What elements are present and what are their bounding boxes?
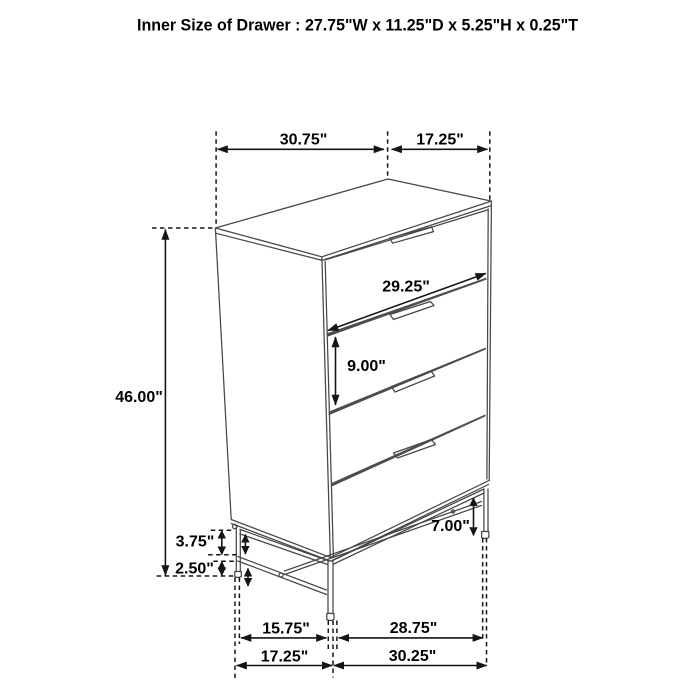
svg-text:30.25": 30.25" [389, 648, 437, 665]
svg-text:29.25": 29.25" [382, 279, 430, 296]
svg-text:15.75": 15.75" [262, 621, 310, 638]
svg-text:30.75": 30.75" [280, 132, 328, 149]
svg-text:7.00": 7.00" [431, 518, 470, 535]
svg-text:17.25": 17.25" [416, 132, 464, 149]
svg-text:46.00": 46.00" [115, 389, 163, 406]
svg-text:28.75": 28.75" [390, 620, 438, 637]
svg-text:17.25": 17.25" [261, 649, 309, 666]
svg-text:Inner Size of Drawer : 27.75"W: Inner Size of Drawer : 27.75"W x 11.25"D… [137, 16, 579, 35]
svg-text:9.00": 9.00" [347, 358, 386, 375]
svg-text:3.75": 3.75" [176, 534, 215, 551]
svg-text:2.50": 2.50" [175, 561, 214, 578]
